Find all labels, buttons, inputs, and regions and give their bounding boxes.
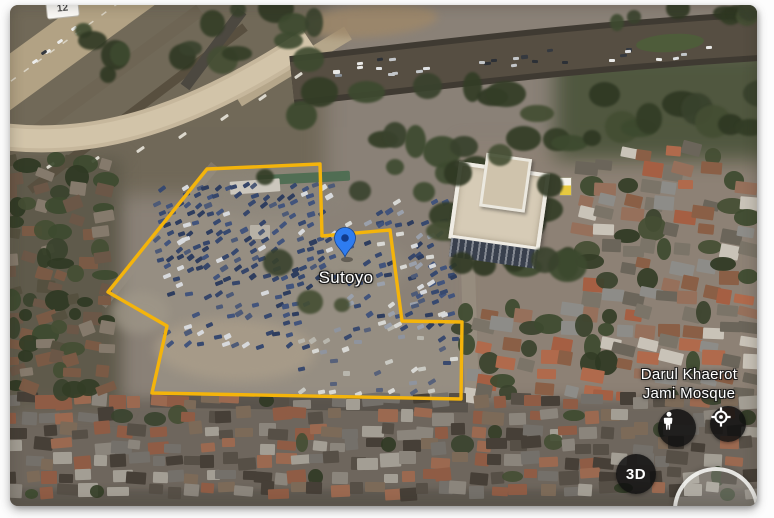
pin-dot — [341, 234, 349, 242]
overlay-layer — [10, 5, 757, 506]
my-location-icon — [710, 406, 732, 428]
poi-label-line1: Darul Khaerot — [608, 365, 757, 384]
location-pin[interactable] — [335, 228, 356, 263]
pegman-button[interactable] — [658, 409, 696, 447]
poi-label-mosque[interactable]: Darul Khaerot Jami Mosque — [608, 365, 757, 403]
poi-label-line2: Jami Mosque — [608, 384, 757, 403]
pin-shadow — [341, 257, 353, 262]
place-label-sutoyo[interactable]: Sutoyo — [281, 268, 411, 288]
pegman-icon — [658, 409, 680, 433]
my-location-button[interactable] — [710, 406, 746, 442]
3d-view-button[interactable]: 3D — [616, 454, 656, 494]
satellite-map-canvas[interactable]: Sutoyo Darul Khaerot Jami Mosque 12 3D — [10, 5, 757, 506]
pin-body — [335, 228, 356, 258]
page: { "map": { "pin_label": "Sutoyo", "poi":… — [0, 0, 774, 518]
